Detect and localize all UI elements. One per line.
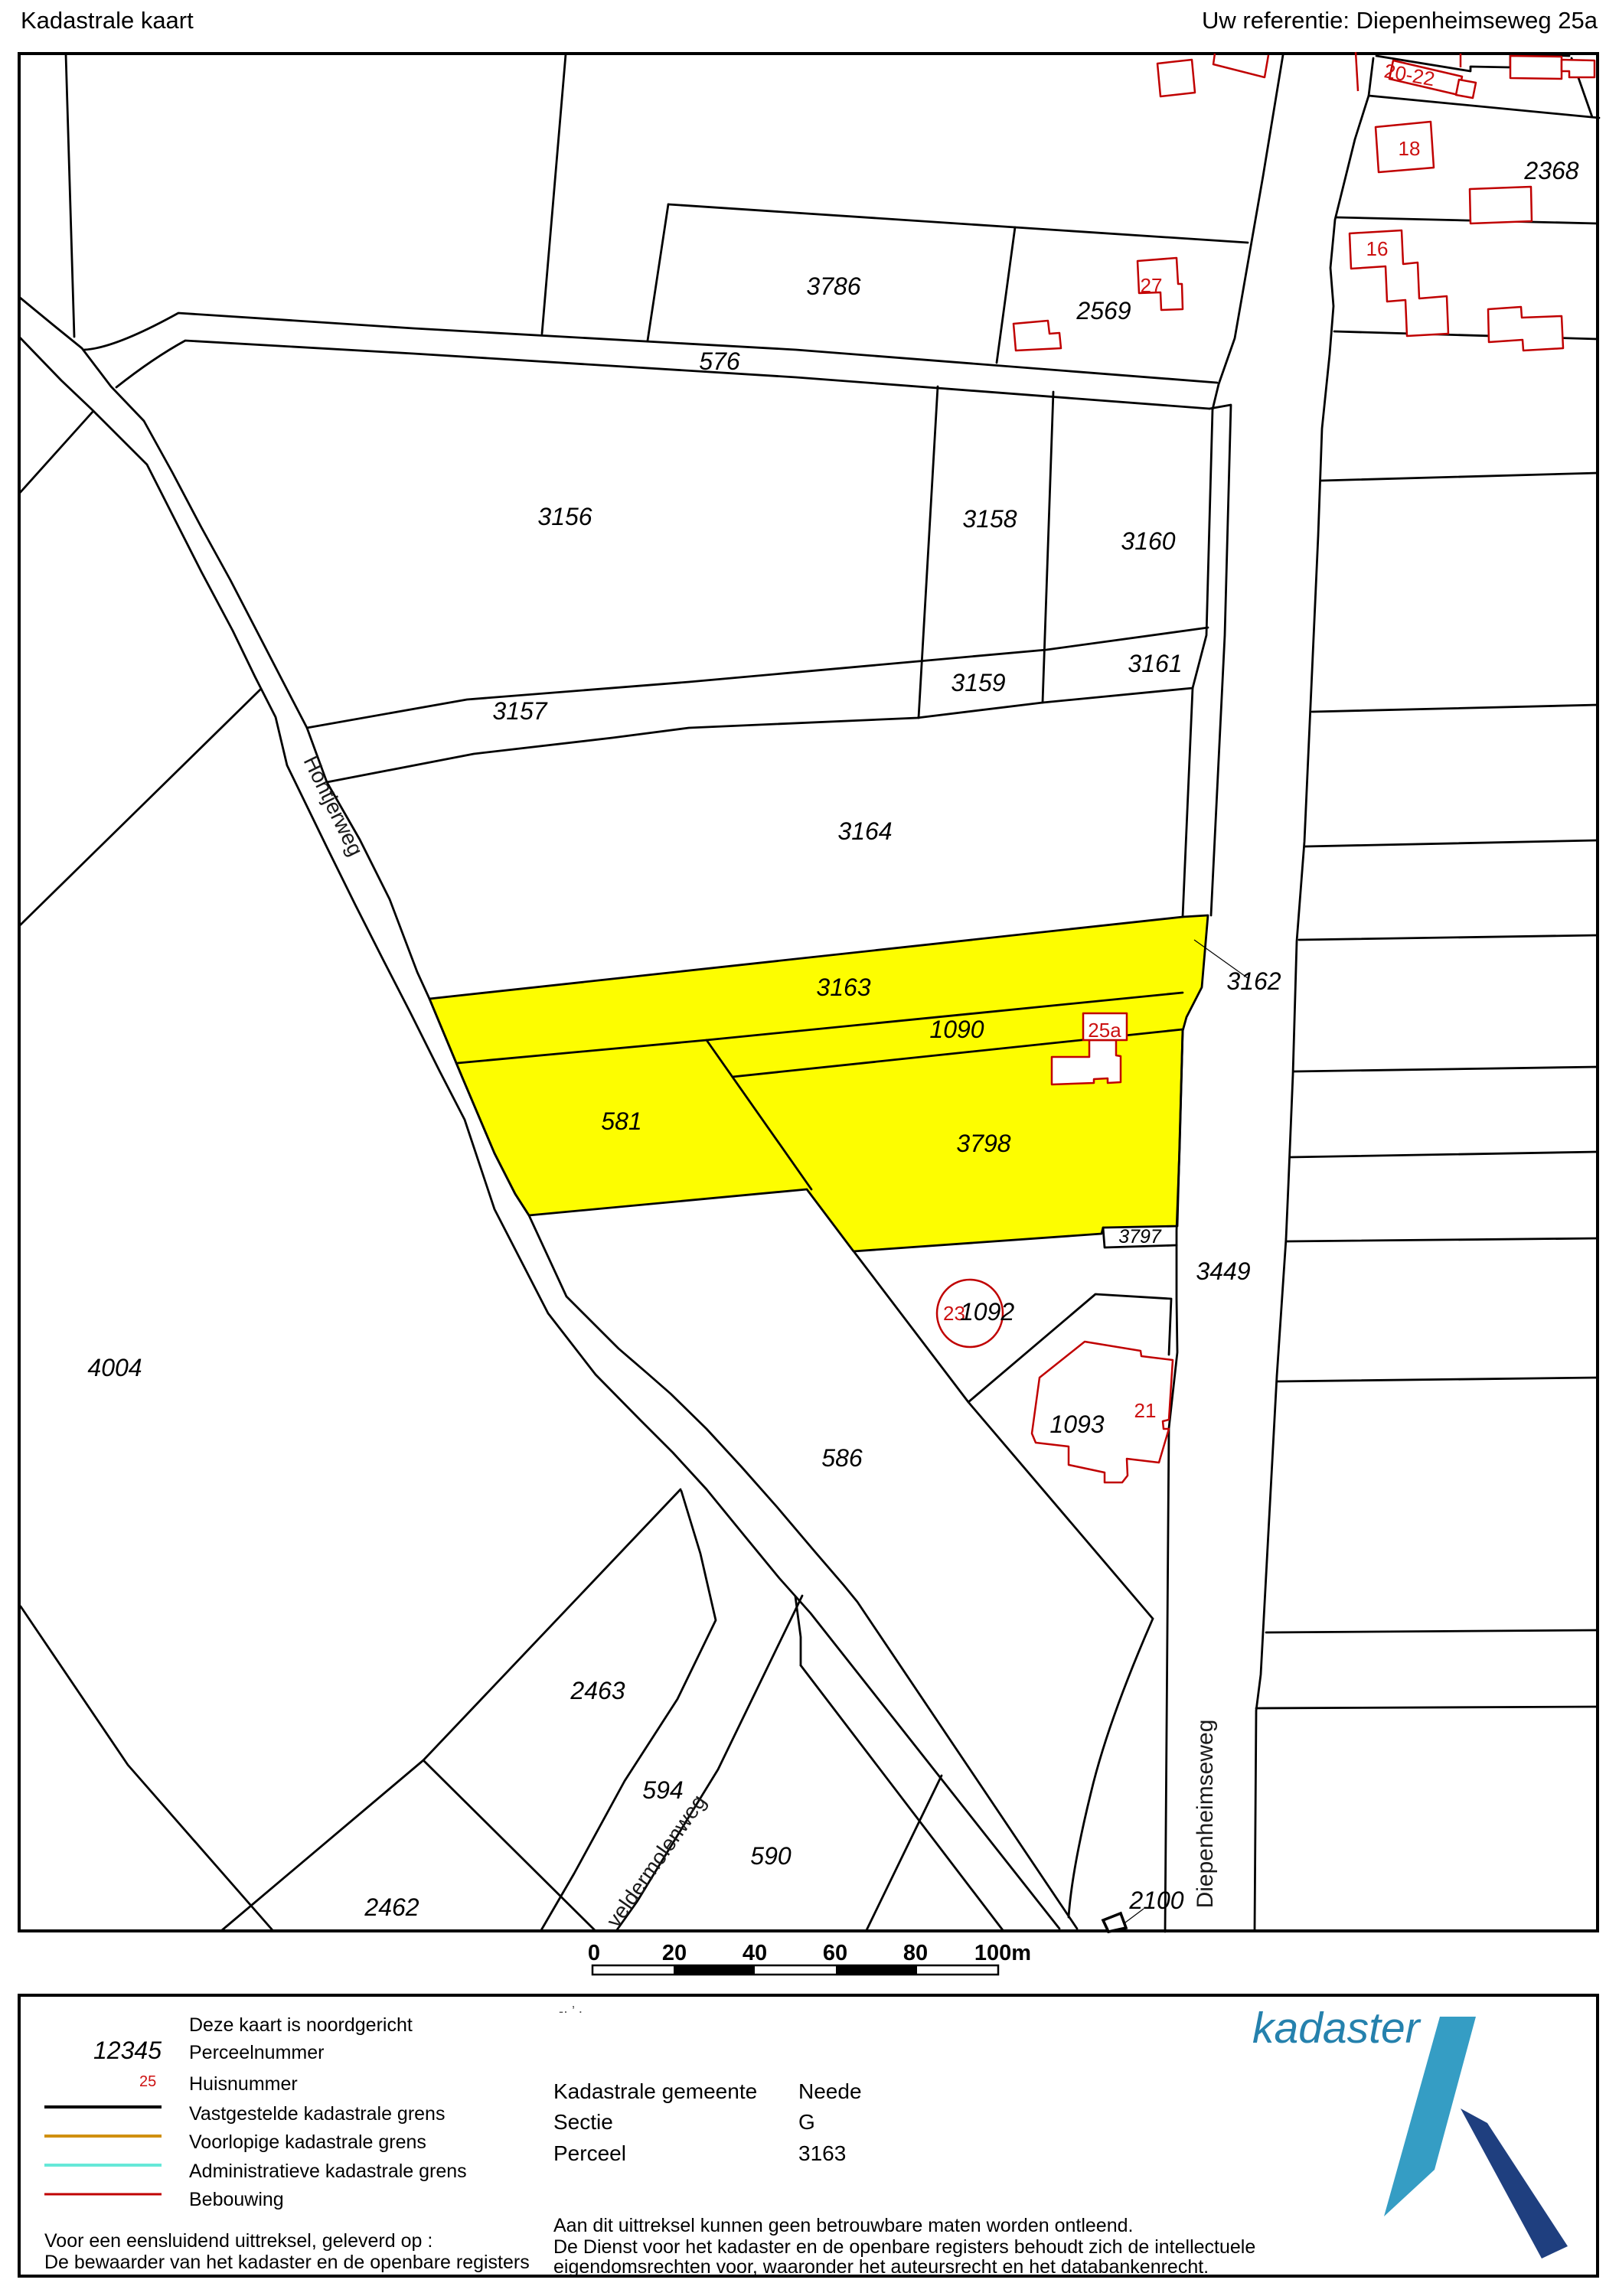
svg-text:586: 586: [821, 1444, 863, 1472]
svg-text:Diepenheimseweg: Diepenheimseweg: [1193, 1720, 1218, 1909]
svg-text:Kadastrale gemeente: Kadastrale gemeente: [553, 2079, 757, 2103]
svg-text:3156: 3156: [537, 503, 592, 530]
svg-text:18: 18: [1399, 137, 1421, 160]
svg-text:veldermolenweg: veldermolenweg: [602, 1790, 710, 1932]
svg-text:De Dienst voor het kadaster en: De Dienst voor het kadaster en de openba…: [553, 2236, 1255, 2258]
svg-text:G: G: [798, 2110, 815, 2134]
svg-text:581: 581: [601, 1107, 641, 1135]
svg-text:3797: 3797: [1118, 1226, 1162, 1247]
svg-text:Voor een eensluidend uittrekse: Voor een eensluidend uittreksel, gelever…: [44, 2230, 432, 2252]
svg-text:Vastgestelde kadastrale grens: Vastgestelde kadastrale grens: [189, 2103, 445, 2125]
svg-text:3159: 3159: [951, 669, 1005, 696]
svg-text:3798: 3798: [956, 1130, 1010, 1157]
svg-text:60: 60: [823, 1941, 847, 1965]
svg-text:Uw referentie: Diepenheimseweg: Uw referentie: Diepenheimseweg 25a: [1202, 7, 1598, 34]
svg-text:594: 594: [642, 1776, 683, 1804]
svg-text:kadaster: kadaster: [1252, 2004, 1422, 2053]
svg-text:3163: 3163: [816, 974, 870, 1001]
svg-text:2463: 2463: [570, 1677, 625, 1704]
svg-text:Deze kaart is noordgericht: Deze kaart is noordgericht: [189, 2014, 413, 2036]
svg-text:Hontjerweg: Hontjerweg: [299, 752, 368, 859]
svg-text:Huisnummer: Huisnummer: [189, 2073, 298, 2095]
svg-text:De bewaarder van het kadaster: De bewaarder van het kadaster en de open…: [44, 2252, 530, 2273]
svg-text:25a: 25a: [1088, 1019, 1121, 1042]
svg-text:3162: 3162: [1226, 967, 1281, 995]
svg-text:3449: 3449: [1196, 1257, 1250, 1285]
svg-text:576: 576: [699, 347, 740, 375]
svg-text:590: 590: [750, 1842, 792, 1870]
svg-text:0: 0: [588, 1941, 600, 1965]
svg-text:Neede: Neede: [798, 2079, 862, 2103]
svg-text:100m: 100m: [974, 1941, 1031, 1965]
svg-text:Perceelnummer: Perceelnummer: [189, 2042, 324, 2063]
svg-text:25: 25: [139, 2073, 156, 2090]
svg-text:27: 27: [1141, 274, 1163, 297]
svg-text:2569: 2569: [1076, 297, 1131, 325]
svg-text:1093: 1093: [1049, 1411, 1104, 1438]
svg-text:Sectie: Sectie: [553, 2110, 613, 2134]
svg-text:2462: 2462: [364, 1893, 419, 1921]
svg-text:12345: 12345: [93, 2037, 162, 2064]
svg-text:3158: 3158: [962, 505, 1017, 533]
svg-text:3161: 3161: [1128, 650, 1182, 677]
svg-text:Bebouwing: Bebouwing: [189, 2189, 284, 2210]
svg-text:2368: 2368: [1523, 157, 1578, 184]
svg-text:Voorlopige kadastrale grens: Voorlopige kadastrale grens: [189, 2131, 426, 2153]
svg-text:16: 16: [1366, 237, 1389, 260]
svg-text:3160: 3160: [1121, 527, 1175, 555]
svg-text:21: 21: [1134, 1399, 1157, 1422]
svg-text:2100: 2100: [1128, 1887, 1183, 1914]
svg-text:1092: 1092: [960, 1298, 1014, 1326]
svg-text:Kadastrale kaart: Kadastrale kaart: [21, 7, 194, 34]
svg-text:80: 80: [903, 1941, 928, 1965]
svg-text:3163: 3163: [798, 2141, 846, 2165]
svg-text:-· ’ ·: -· ’ ·: [559, 2004, 583, 2019]
svg-text:1090: 1090: [929, 1016, 984, 1043]
svg-text:3786: 3786: [806, 272, 860, 300]
svg-text:20: 20: [662, 1941, 687, 1965]
svg-text:3157: 3157: [492, 697, 547, 725]
svg-text:40: 40: [743, 1941, 767, 1965]
svg-text:Administratieve kadastrale gre: Administratieve kadastrale grens: [189, 2161, 467, 2182]
svg-text:Perceel: Perceel: [553, 2141, 626, 2165]
svg-text:eigendomsrechten voor, waarond: eigendomsrechten voor, waaronder het aut…: [553, 2256, 1209, 2278]
svg-text:3164: 3164: [837, 817, 892, 845]
svg-text:4004: 4004: [87, 1354, 142, 1381]
svg-text:Aan dit uittreksel kunnen geen: Aan dit uittreksel kunnen geen betrouwba…: [553, 2215, 1133, 2236]
